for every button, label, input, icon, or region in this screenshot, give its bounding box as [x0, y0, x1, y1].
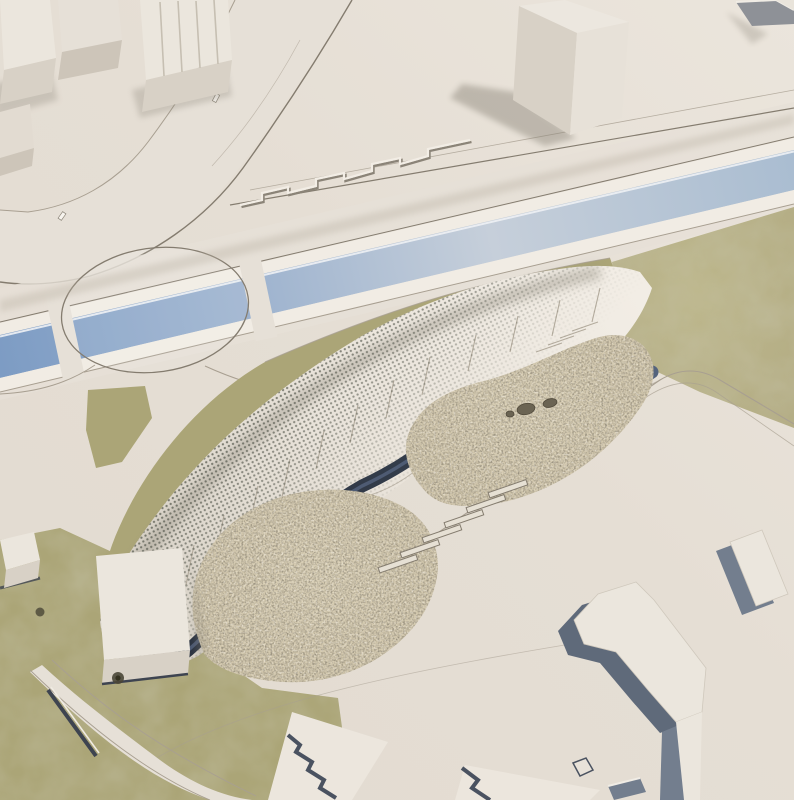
aerial-render: [0, 0, 794, 800]
tower-face-se: [570, 22, 629, 135]
render-canvas: [0, 0, 794, 800]
